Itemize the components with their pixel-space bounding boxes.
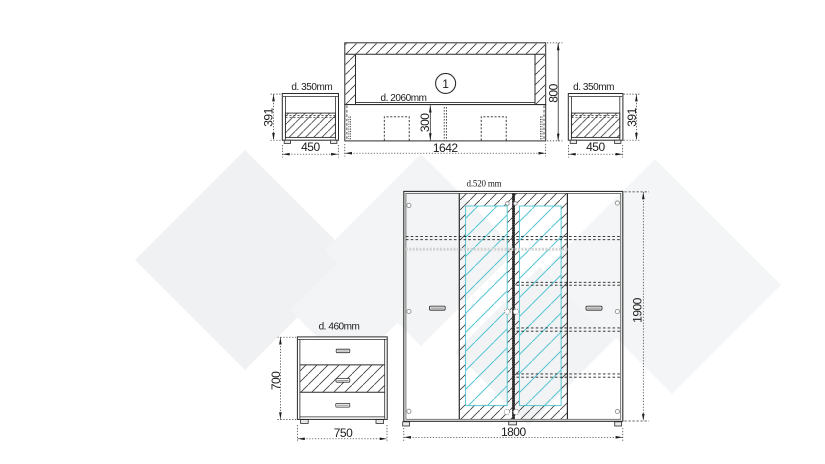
svg-text:d. 2060mm: d. 2060mm [381,93,427,104]
svg-text:1642: 1642 [433,141,459,155]
svg-text:1: 1 [442,77,449,91]
svg-text:391: 391 [625,107,639,126]
svg-text:d. 350mm: d. 350mm [291,82,332,93]
svg-text:1900: 1900 [631,297,645,323]
svg-text:391: 391 [261,107,275,126]
svg-text:450: 450 [586,140,605,154]
svg-text:d. 460mm: d. 460mm [319,322,360,333]
svg-text:1800: 1800 [501,425,527,439]
svg-text:700: 700 [269,371,283,390]
svg-text:450: 450 [301,140,320,154]
svg-text:750: 750 [334,426,353,440]
svg-text:d. 350mm: d. 350mm [573,82,614,93]
svg-text:d.520 mm: d.520 mm [467,179,502,189]
svg-text:800: 800 [546,83,560,102]
svg-text:300: 300 [418,113,432,132]
